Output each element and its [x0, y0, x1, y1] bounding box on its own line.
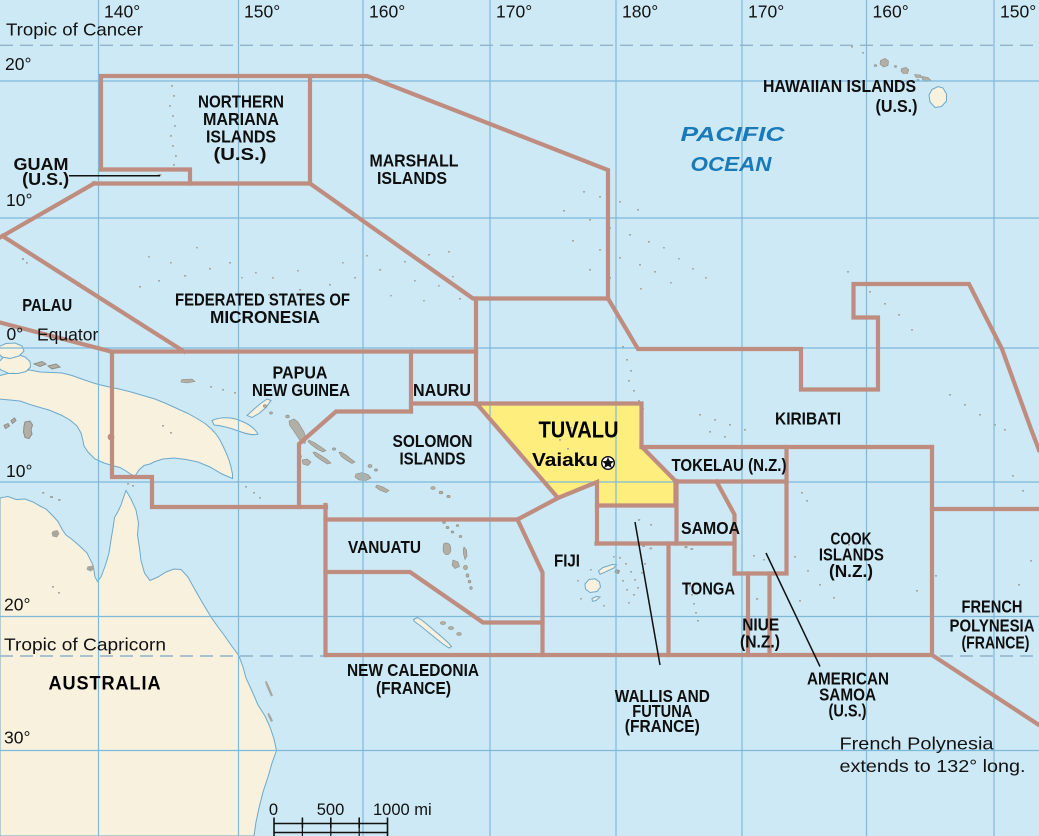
- svg-text:(FRANCE): (FRANCE): [625, 716, 700, 736]
- svg-text:170°: 170°: [748, 2, 784, 22]
- svg-text:KIRIBATI: KIRIBATI: [775, 409, 841, 429]
- svg-text:20°: 20°: [5, 54, 31, 74]
- svg-text:NEW GUINEA: NEW GUINEA: [252, 380, 350, 400]
- svg-text:NEW CALEDONIA: NEW CALEDONIA: [347, 660, 479, 680]
- svg-text:(N.Z.): (N.Z.): [829, 561, 873, 581]
- svg-text:MICRONESIA: MICRONESIA: [210, 307, 320, 327]
- svg-text:150°: 150°: [244, 2, 280, 22]
- svg-text:1000 mi: 1000 mi: [373, 801, 432, 819]
- svg-text:140°: 140°: [104, 2, 140, 22]
- svg-text:20°: 20°: [4, 595, 30, 615]
- svg-text:150°: 150°: [1000, 2, 1036, 22]
- svg-text:Equator: Equator: [37, 325, 98, 345]
- svg-text:extends to 132° long.: extends to 132° long.: [840, 756, 1026, 776]
- svg-text:PALAU: PALAU: [22, 295, 72, 315]
- svg-text:SAMOA: SAMOA: [681, 518, 740, 538]
- svg-text:10°: 10°: [6, 461, 32, 481]
- svg-text:ISLANDS: ISLANDS: [377, 168, 447, 188]
- svg-text:VANUATU: VANUATU: [348, 537, 421, 557]
- svg-text:FIJI: FIJI: [554, 551, 580, 571]
- svg-text:(FRANCE): (FRANCE): [376, 678, 451, 698]
- svg-text:AUSTRALIA: AUSTRALIA: [49, 673, 162, 695]
- svg-text:French Polynesia: French Polynesia: [840, 734, 994, 754]
- svg-text:Vaiaku: Vaiaku: [532, 449, 598, 470]
- svg-text:500: 500: [317, 801, 345, 819]
- svg-text:30°: 30°: [4, 728, 30, 748]
- svg-text:160°: 160°: [369, 2, 405, 22]
- svg-text:TUVALU: TUVALU: [539, 417, 619, 443]
- svg-text:160°: 160°: [873, 2, 909, 22]
- svg-text:(U.S.): (U.S.): [22, 169, 69, 189]
- svg-text:OCEAN: OCEAN: [691, 153, 773, 176]
- svg-text:FRENCH: FRENCH: [962, 596, 1023, 616]
- svg-text:170°: 170°: [496, 2, 532, 22]
- svg-text:Tropic of Cancer: Tropic of Cancer: [6, 20, 143, 40]
- svg-text:(U.S.): (U.S.): [214, 144, 267, 164]
- svg-text:NAURU: NAURU: [413, 380, 471, 400]
- svg-text:Tropic of Capricorn: Tropic of Capricorn: [4, 635, 166, 655]
- svg-text:(FRANCE): (FRANCE): [962, 633, 1030, 653]
- svg-text:HAWAIIAN ISLANDS: HAWAIIAN ISLANDS: [763, 76, 916, 96]
- svg-text:180°: 180°: [622, 2, 658, 22]
- svg-text:TONGA: TONGA: [682, 579, 735, 599]
- svg-text:(U.S.): (U.S.): [876, 96, 918, 116]
- svg-text:ISLANDS: ISLANDS: [400, 449, 466, 469]
- svg-text:PACIFIC: PACIFIC: [681, 123, 787, 146]
- svg-text:(U.S.): (U.S.): [829, 701, 867, 721]
- svg-text:(N.Z.): (N.Z.): [740, 632, 780, 652]
- svg-text:10°: 10°: [6, 190, 32, 210]
- svg-text:0: 0: [269, 801, 278, 819]
- svg-text:TOKELAU (N.Z.): TOKELAU (N.Z.): [672, 455, 787, 475]
- svg-text:0°: 0°: [7, 324, 24, 344]
